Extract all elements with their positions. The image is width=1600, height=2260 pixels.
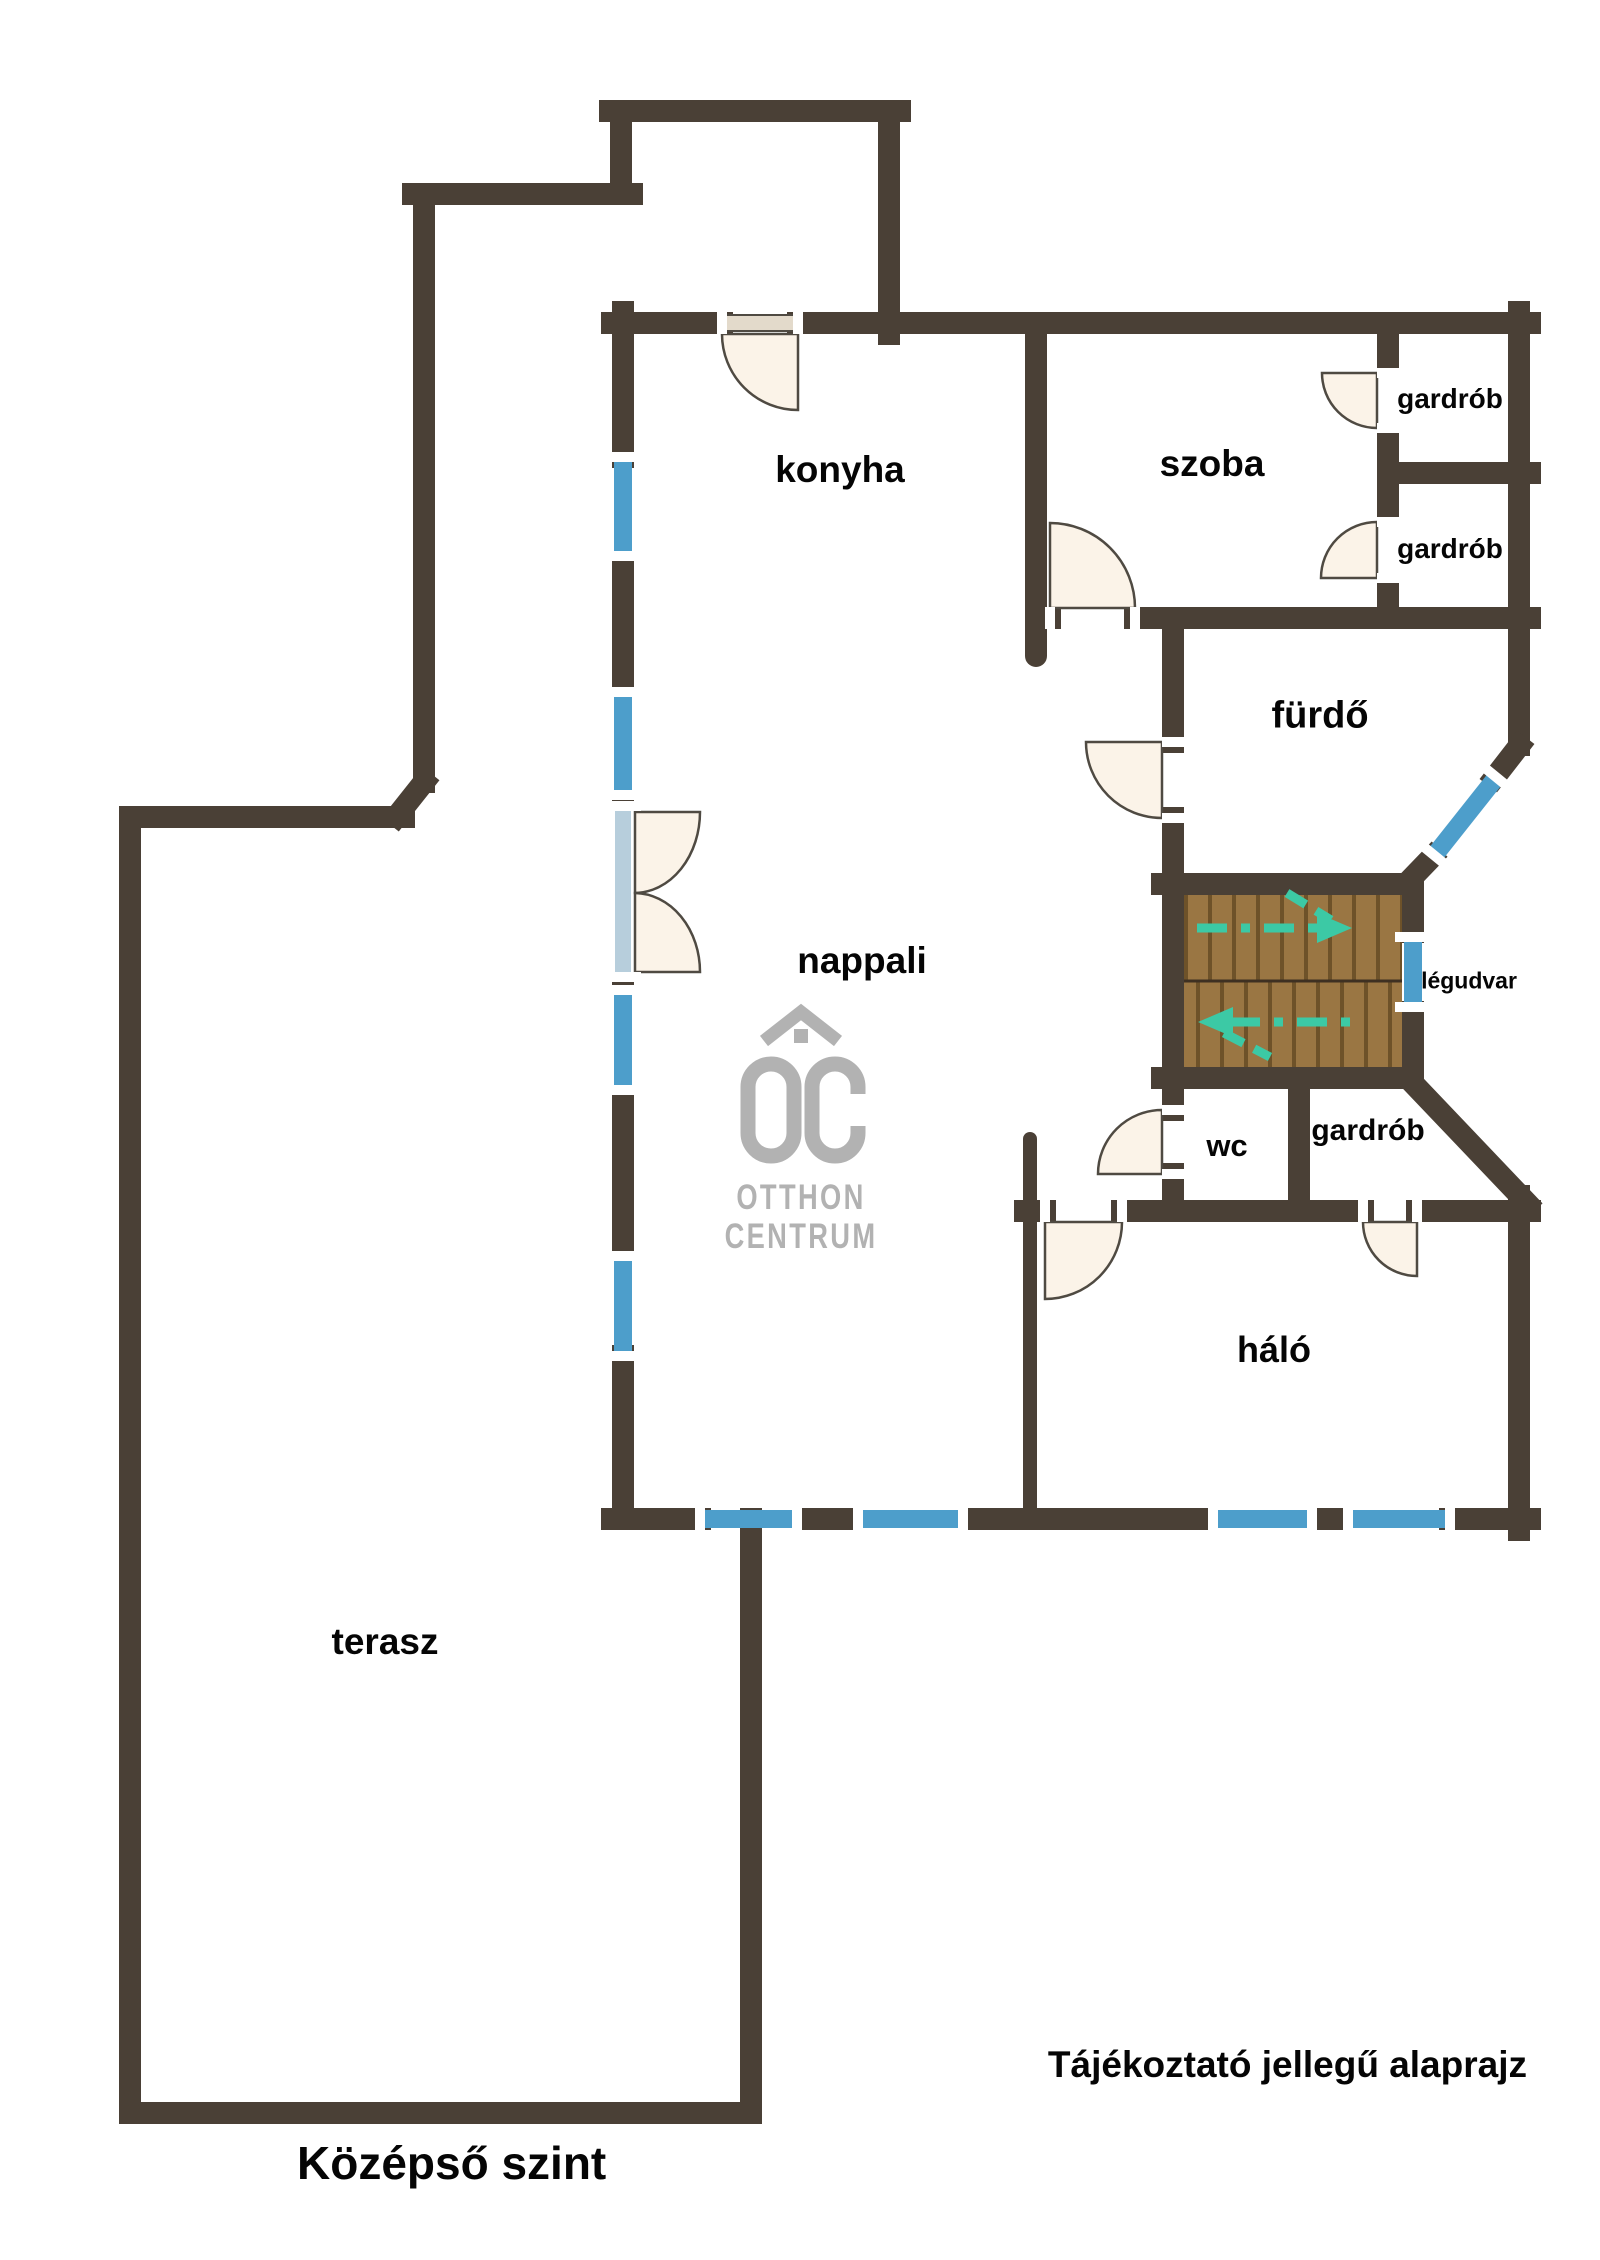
exterior-outline-walls [130,111,900,2113]
bathroom-door-swing [1086,742,1162,818]
french-door-leaf-top [635,812,700,893]
label-szoba: szoba [1160,443,1265,485]
bedroom-door-swing [1045,1222,1122,1299]
closet-door-swing [1363,1222,1417,1276]
label-furdo: fürdő [1271,695,1368,738]
gardrob2-door-swing [1321,522,1377,578]
otthon-centrum-logo-icon [748,1012,874,1156]
label-gardrob-2: gardrób [1397,533,1503,565]
label-legudvar: légudvar [1421,968,1517,995]
label-gardrob-3: gardrób [1311,1114,1424,1148]
french-door-leaf-bottom [635,893,700,972]
staircase [1184,893,1402,1067]
szoba-door-swing [1050,523,1135,608]
level-title: Középső szint [297,2136,606,2190]
wc-door-swing [1098,1110,1162,1174]
label-nappali: nappali [797,940,927,982]
logo-word-otthon: OTTHON [736,1178,865,1218]
kitchen-door-swing [722,334,798,410]
label-wc: wc [1206,1128,1247,1164]
floorplan-page: konyha szoba gardrób gardrób fürdő nappa… [0,0,1600,2260]
logo-word-centrum: CENTRUM [725,1217,878,1257]
label-konyha: konyha [775,449,905,491]
logo-letter-o [748,1064,794,1156]
label-terasz: terasz [332,1621,439,1663]
disclaimer-text: Tájékoztató jellegű alaprajz [1048,2044,1527,2086]
label-gardrob-1: gardrób [1397,383,1503,415]
label-halo: háló [1237,1329,1311,1371]
kitchen-door-leaf [722,315,798,331]
gardrob1-door-swing [1322,373,1377,428]
